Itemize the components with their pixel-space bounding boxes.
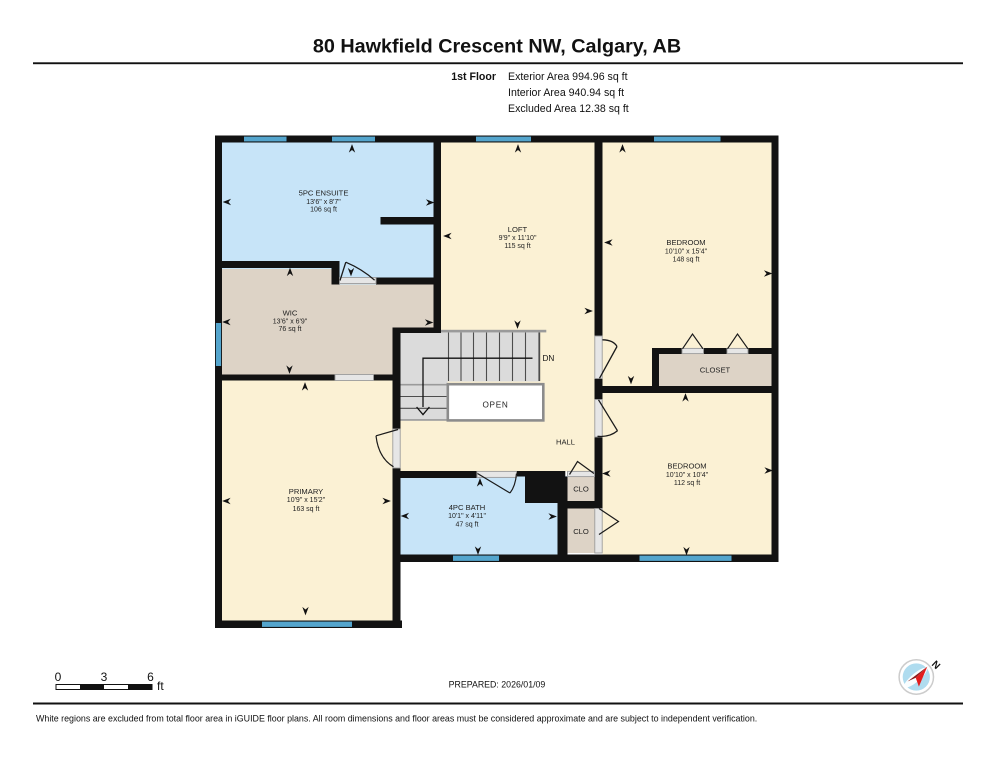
- svg-text:5PC ENSUITE: 5PC ENSUITE: [299, 188, 349, 197]
- svg-text:BEDROOM: BEDROOM: [666, 238, 705, 247]
- svg-text:13'6" x 6'9": 13'6" x 6'9": [273, 318, 308, 325]
- svg-text:112 sq ft: 112 sq ft: [674, 480, 700, 487]
- svg-text:CLOSET: CLOSET: [700, 365, 731, 374]
- svg-text:LOFT: LOFT: [508, 225, 528, 234]
- svg-text:DN: DN: [543, 354, 555, 363]
- svg-text:WIC: WIC: [283, 308, 298, 317]
- svg-text:White regions are excluded fro: White regions are excluded from total fl…: [36, 714, 757, 724]
- svg-text:10'10" x 10'4": 10'10" x 10'4": [666, 472, 709, 479]
- svg-text:HALL: HALL: [556, 437, 575, 446]
- svg-text:76 sq ft: 76 sq ft: [279, 326, 302, 333]
- svg-text:CLO: CLO: [573, 527, 589, 536]
- svg-text:13'6" x 8'7": 13'6" x 8'7": [306, 199, 341, 206]
- svg-text:0: 0: [55, 670, 62, 684]
- svg-text:4PC BATH: 4PC BATH: [449, 503, 486, 512]
- svg-text:1st Floor: 1st Floor: [451, 71, 496, 83]
- svg-text:10'9" x 15'2": 10'9" x 15'2": [287, 497, 326, 504]
- svg-text:80 Hawkfield Crescent NW, Calg: 80 Hawkfield Crescent NW, Calgary, AB: [313, 36, 681, 58]
- svg-text:47 sq ft: 47 sq ft: [456, 522, 479, 529]
- svg-text:PREPARED: 2026/01/09: PREPARED: 2026/01/09: [449, 680, 546, 690]
- svg-text:3: 3: [101, 670, 108, 684]
- svg-text:OPEN: OPEN: [482, 400, 508, 409]
- svg-text:6: 6: [147, 670, 154, 684]
- svg-text:Exterior Area 994.96 sq ft: Exterior Area 994.96 sq ft: [508, 71, 628, 83]
- svg-text:ft: ft: [157, 679, 164, 693]
- svg-text:BEDROOM: BEDROOM: [667, 461, 706, 470]
- svg-text:106 sq ft: 106 sq ft: [310, 207, 337, 214]
- svg-text:115 sq ft: 115 sq ft: [504, 243, 530, 250]
- svg-text:Excluded Area 12.38 sq ft: Excluded Area 12.38 sq ft: [508, 103, 629, 115]
- svg-text:148 sq ft: 148 sq ft: [673, 257, 700, 264]
- svg-text:9'9" x 11'10": 9'9" x 11'10": [499, 235, 537, 242]
- svg-text:10'1" x 4'11": 10'1" x 4'11": [448, 513, 486, 520]
- svg-text:163 sq ft: 163 sq ft: [293, 506, 320, 513]
- svg-text:PRIMARY: PRIMARY: [289, 487, 323, 496]
- svg-text:CLO: CLO: [573, 485, 589, 494]
- svg-text:Interior Area 940.94 sq ft: Interior Area 940.94 sq ft: [508, 87, 624, 99]
- svg-text:10'10" x 15'4": 10'10" x 15'4": [665, 249, 708, 256]
